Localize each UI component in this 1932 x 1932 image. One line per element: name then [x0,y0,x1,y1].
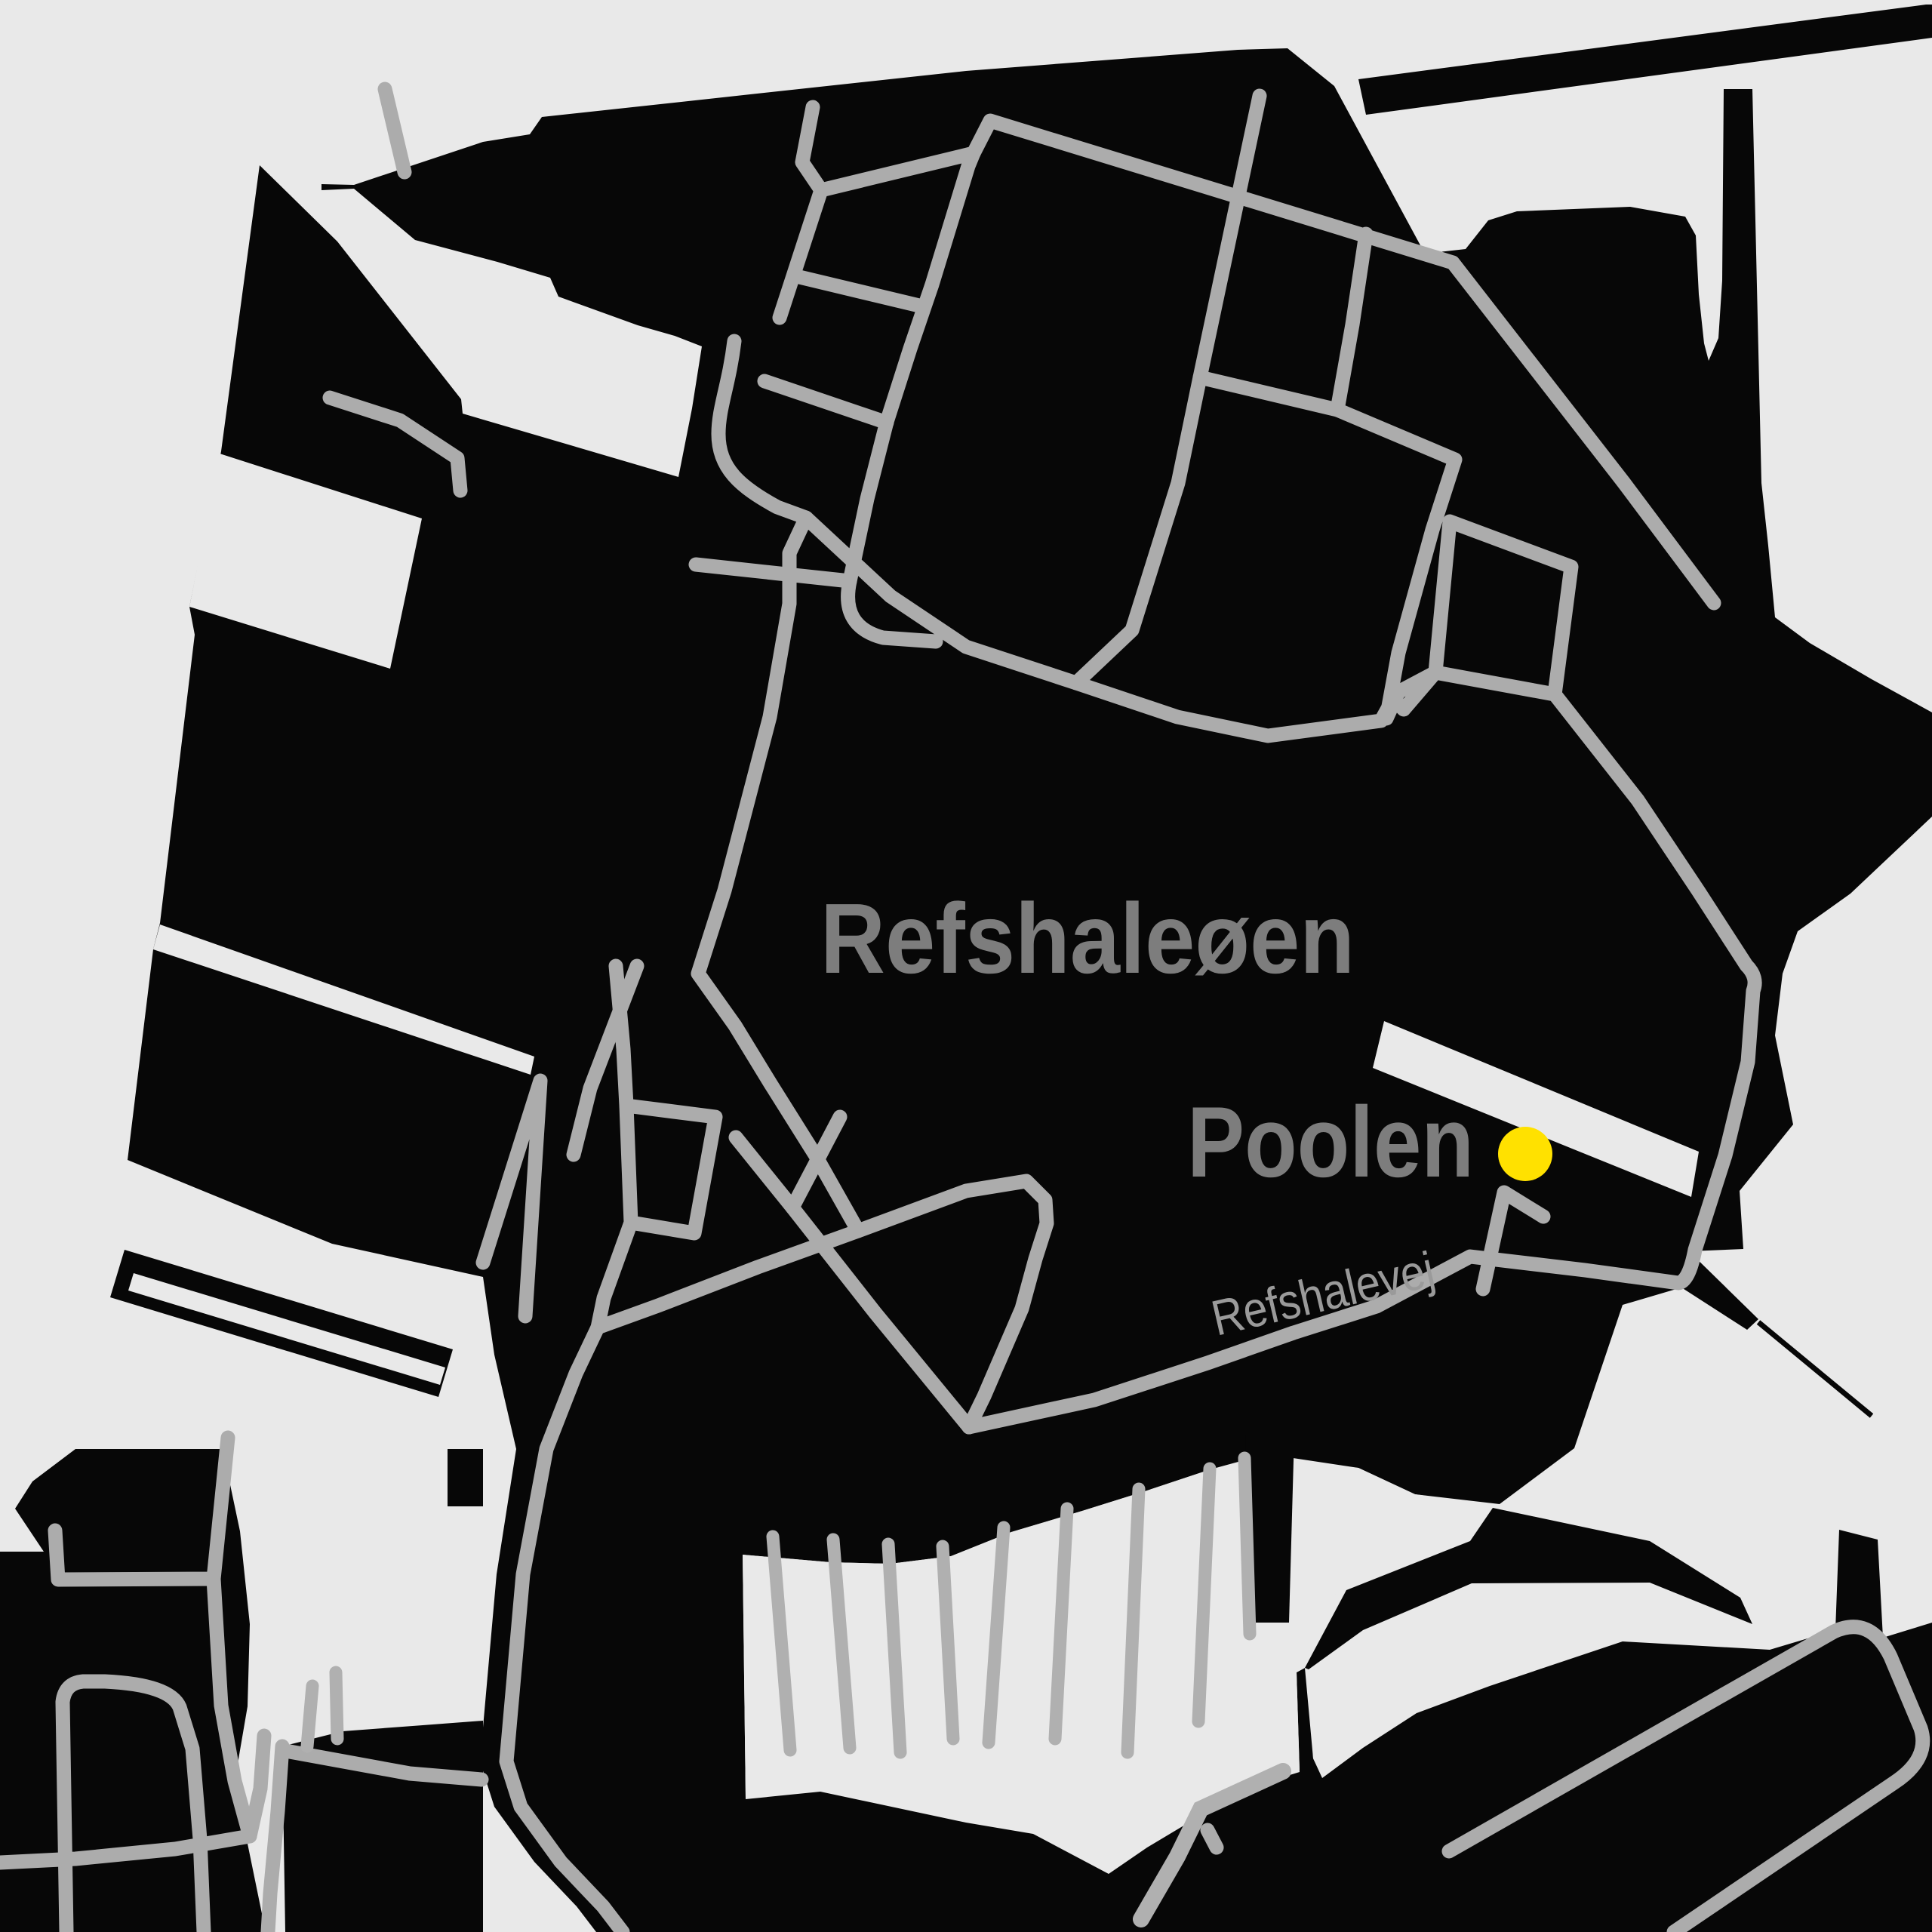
svg-text:Refshaleøen: Refshaleøen [820,883,1355,994]
svg-text:Poolen: Poolen [1187,1087,1474,1198]
